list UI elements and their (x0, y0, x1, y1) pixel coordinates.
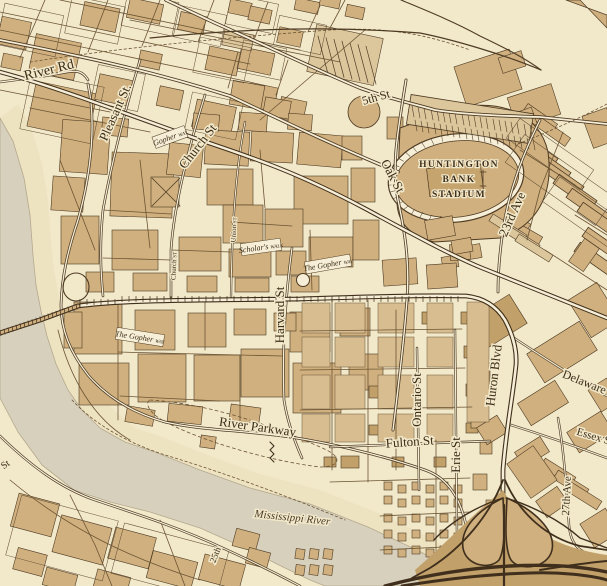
svg-text:BANK: BANK (442, 175, 475, 185)
svg-text:Erie St: Erie St (448, 437, 463, 473)
svg-text:Ontario St: Ontario St (409, 373, 424, 427)
svg-text:STADIUM: STADIUM (432, 190, 486, 200)
svg-text:27th Ave: 27th Ave (560, 476, 574, 516)
svg-text:Harvard St: Harvard St (272, 286, 287, 343)
svg-text:HUNTINGTON: HUNTINGTON (419, 160, 499, 170)
